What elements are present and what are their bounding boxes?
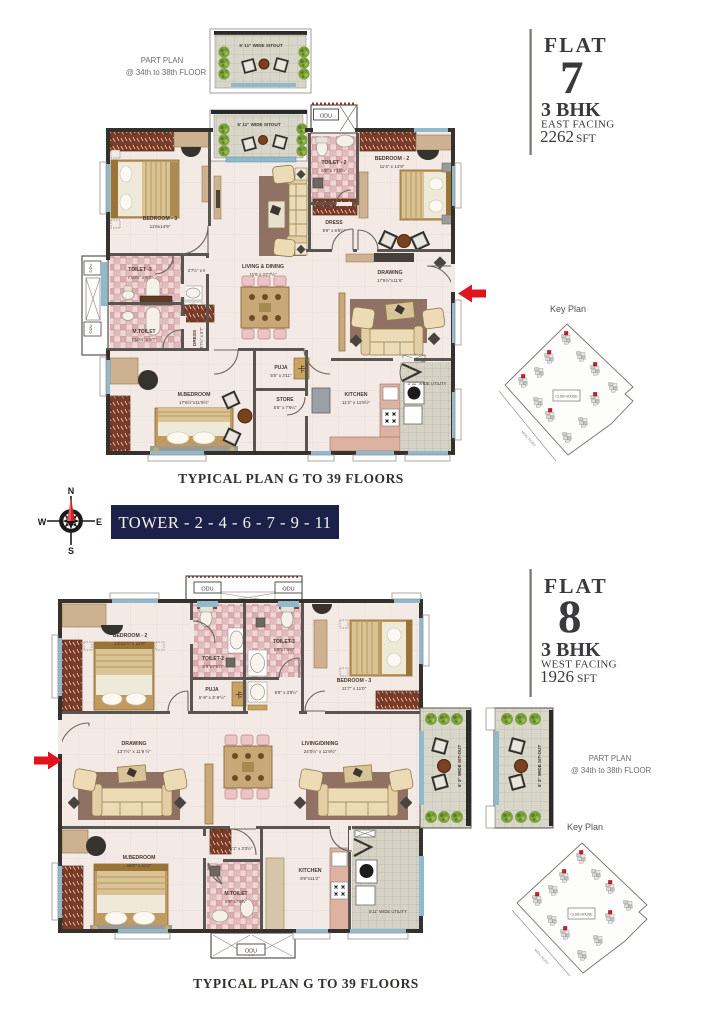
svg-text:CLUB HOUSE: CLUB HOUSE [555, 395, 578, 399]
svg-text:5'5" x 7'6¼": 5'5" x 7'6¼" [274, 405, 297, 410]
svg-text:TOILET-3: TOILET-3 [273, 639, 295, 645]
svg-text:9'8"x11'2": 9'8"x11'2" [300, 876, 320, 881]
svg-text:ODU: ODU [320, 114, 332, 120]
svg-text:17'8½"x11'6": 17'8½"x11'6" [377, 277, 404, 283]
svg-text:15'0" x 11'2": 15'0" x 11'2" [127, 863, 152, 868]
svg-text:CLUB HOUSE: CLUB HOUSE [570, 913, 593, 917]
svg-text:TOILET - 2: TOILET - 2 [322, 160, 347, 166]
svg-text:11'7" x 11'0": 11'7" x 11'0" [342, 686, 367, 691]
svg-text:ODU: ODU [88, 324, 93, 333]
svg-text:3' 11" WIDE UTILITY: 3' 11" WIDE UTILITY [408, 381, 447, 386]
svg-text:PART PLAN: PART PLAN [141, 56, 183, 65]
svg-text:TOILET-2: TOILET-2 [202, 656, 224, 662]
svg-text:PUJA: PUJA [205, 687, 219, 693]
svg-text:11'4" x 14'9": 11'4" x 14'9" [380, 164, 405, 169]
svg-text:5' 11" WIDE SITOUT: 5' 11" WIDE SITOUT [239, 43, 282, 48]
svg-text:LIVING/DINING: LIVING/DINING [302, 741, 339, 747]
svg-text:DRAWING: DRAWING [377, 270, 402, 276]
svg-text:13'7½" x 11'9 ½": 13'7½" x 11'9 ½" [117, 748, 151, 754]
svg-text:M.TOILET: M.TOILET [132, 329, 155, 335]
svg-text:M.BEDROOM: M.BEDROOM [178, 392, 211, 398]
svg-text:ODU: ODU [245, 949, 257, 955]
svg-text:5'11" WIDE UTILITY: 5'11" WIDE UTILITY [369, 909, 407, 914]
svg-text:ODU: ODU [88, 263, 93, 272]
svg-text:17'6½"x11'9½": 17'6½"x11'9½" [179, 399, 209, 405]
svg-text:8: 8 [558, 591, 582, 643]
svg-text:BEDROOM - 3: BEDROOM - 3 [143, 216, 178, 222]
svg-text:@ 34th to 38th FLOOR: @ 34th to 38th FLOOR [571, 766, 652, 775]
svg-text:KITCHEN: KITCHEN [298, 868, 321, 874]
svg-text:5'9"x7'6½": 5'9"x7'6½" [274, 647, 295, 652]
svg-text:24'0½" x 11'9½": 24'0½" x 11'9½" [304, 748, 337, 754]
svg-text:LIVING & DINING: LIVING & DINING [242, 264, 284, 270]
svg-text:PART PLAN: PART PLAN [589, 754, 631, 763]
svg-text:5'-9" x 3'-9'½": 5'-9" x 3'-9'½" [199, 695, 226, 700]
svg-text:5'9" x7'6½": 5'9" x7'6½" [225, 899, 247, 904]
svg-text:12'11½" x 11'0": 12'11½" x 11'0" [115, 640, 146, 646]
svg-text:5' 11" WIDE SITOUT: 5' 11" WIDE SITOUT [237, 122, 280, 127]
svg-text:6'1" x 3'3½": 6'1" x 3'3½" [230, 846, 253, 851]
svg-text:PUJA: PUJA [274, 365, 288, 371]
svg-text:W: W [38, 517, 47, 527]
svg-text:5' 3" WIDE SIT-OUT: 5' 3" WIDE SIT-OUT [537, 745, 542, 788]
svg-text:3'7½" x 5'7": 3'7½" x 5'7" [199, 327, 204, 349]
svg-text:11'6x14'9": 11'6x14'9" [150, 224, 171, 229]
svg-text:M.BEDROOM: M.BEDROOM [123, 855, 156, 861]
svg-text:BEDROOM - 2: BEDROOM - 2 [113, 633, 148, 639]
svg-text:ODU: ODU [201, 587, 213, 593]
svg-text:TOILET -3: TOILET -3 [128, 267, 152, 273]
svg-text:DRESS: DRESS [192, 329, 198, 346]
svg-text:5' 3" WIDE SIT-OUT: 5' 3" WIDE SIT-OUT [457, 745, 462, 788]
svg-text:Key Plan: Key Plan [550, 304, 586, 314]
svg-text:DRAWING: DRAWING [121, 741, 146, 747]
svg-text:7'10½" x 5'7": 7'10½" x 5'7" [131, 337, 157, 342]
svg-text:11'2" x 11'9½": 11'2" x 11'9½" [342, 399, 371, 405]
svg-text:KITCHEN: KITCHEN [344, 392, 367, 398]
svg-text:BEDROOM - 3: BEDROOM - 3 [337, 678, 372, 684]
svg-text:5'9"X7'6½": 5'9"X7'6½" [202, 664, 224, 669]
svg-text:5'5" x 3'11": 5'5" x 3'11" [270, 373, 292, 378]
svg-text:5'9" x 3'9½": 5'9" x 3'9½" [275, 690, 298, 695]
svg-text:STORE: STORE [276, 397, 294, 403]
svg-text:S: S [68, 546, 74, 556]
svg-text:5'8" x 7'10½": 5'8" x 7'10½" [321, 168, 347, 173]
svg-text:TYPICAL PLAN G TO 39 FLOORS: TYPICAL PLAN G TO 39 FLOORS [178, 471, 404, 486]
svg-text:TYPICAL PLAN G TO 39 FLOORS: TYPICAL PLAN G TO 39 FLOORS [193, 976, 419, 991]
svg-text:M.TOILET: M.TOILET [224, 891, 247, 897]
svg-text:TOWER - 2 - 4 - 6 - 7 - 9 - 11: TOWER - 2 - 4 - 6 - 7 - 9 - 11 [119, 513, 332, 532]
svg-text:卡: 卡 [235, 690, 243, 700]
svg-text:7: 7 [560, 52, 584, 104]
svg-text:E: E [96, 517, 102, 527]
svg-text:卡: 卡 [298, 364, 306, 374]
svg-text:BEDROOM - 2: BEDROOM - 2 [375, 156, 410, 162]
svg-text:DRESS: DRESS [325, 220, 343, 226]
svg-text:ODU: ODU [282, 587, 294, 593]
svg-text:N: N [68, 486, 75, 496]
svg-text:@ 34th to 38th FLOOR: @ 34th to 38th FLOOR [126, 68, 207, 77]
svg-text:Key Plan: Key Plan [567, 822, 603, 832]
